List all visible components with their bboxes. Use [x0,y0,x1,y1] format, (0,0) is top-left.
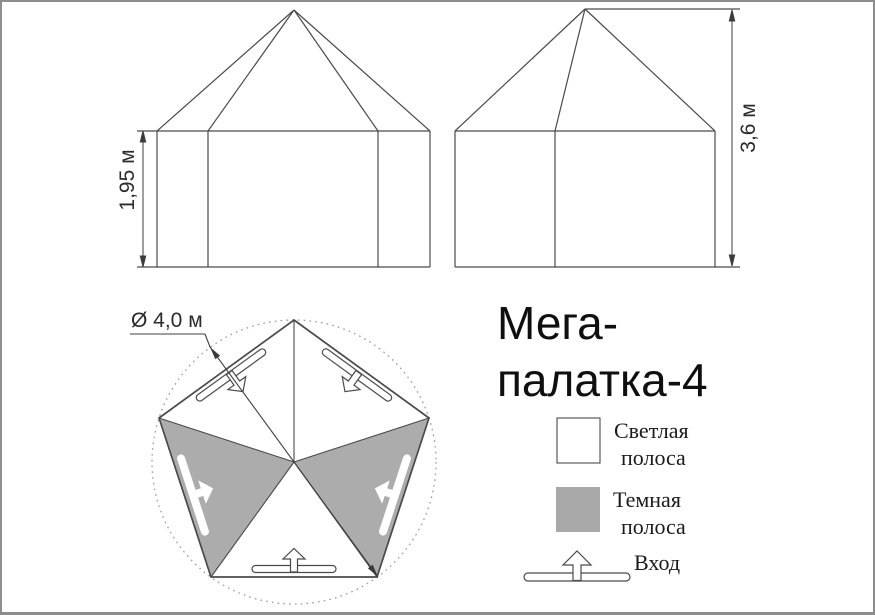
side-dim-arrow-down [729,255,734,266]
diameter-arrow-upper [210,347,220,359]
drawing-sheet: 1,95 м 3,6 м Ø 4,0 м Мега- палатка-4 Све… [0,0,875,615]
plan-view [130,320,436,604]
legend-light-swatch [557,418,600,463]
legend-entrance-label: Вход [634,550,680,576]
legend-light-label-line2: полоса [621,445,686,471]
page-title-line2: палатка-4 [497,352,708,409]
plan-diameter-label: Ø 4,0 м [131,309,203,333]
legend-dark-label-line1: Темная [613,487,681,513]
side-height-dimension [729,10,734,266]
front-dim-arrow-up [140,131,145,142]
front-height-label: 1,95 м [116,149,140,210]
side-view [455,9,740,267]
front-roof-lines [157,10,430,131]
side-roof-lines [455,9,715,131]
side-dim-arrow-up [729,10,734,21]
front-dim-arrow-down [140,256,145,267]
legend-entrance-symbol [524,551,630,581]
legend-light-label-line1: Светлая [614,418,689,444]
legend-dark-label-line2: полоса [621,514,686,540]
side-height-label: 3,6 м [737,103,761,152]
page-title-line1: Мега- [497,295,618,352]
drawing-canvas [0,0,875,615]
legend-dark-swatch [556,487,600,532]
front-view [137,10,430,267]
front-height-dimension [140,131,145,267]
